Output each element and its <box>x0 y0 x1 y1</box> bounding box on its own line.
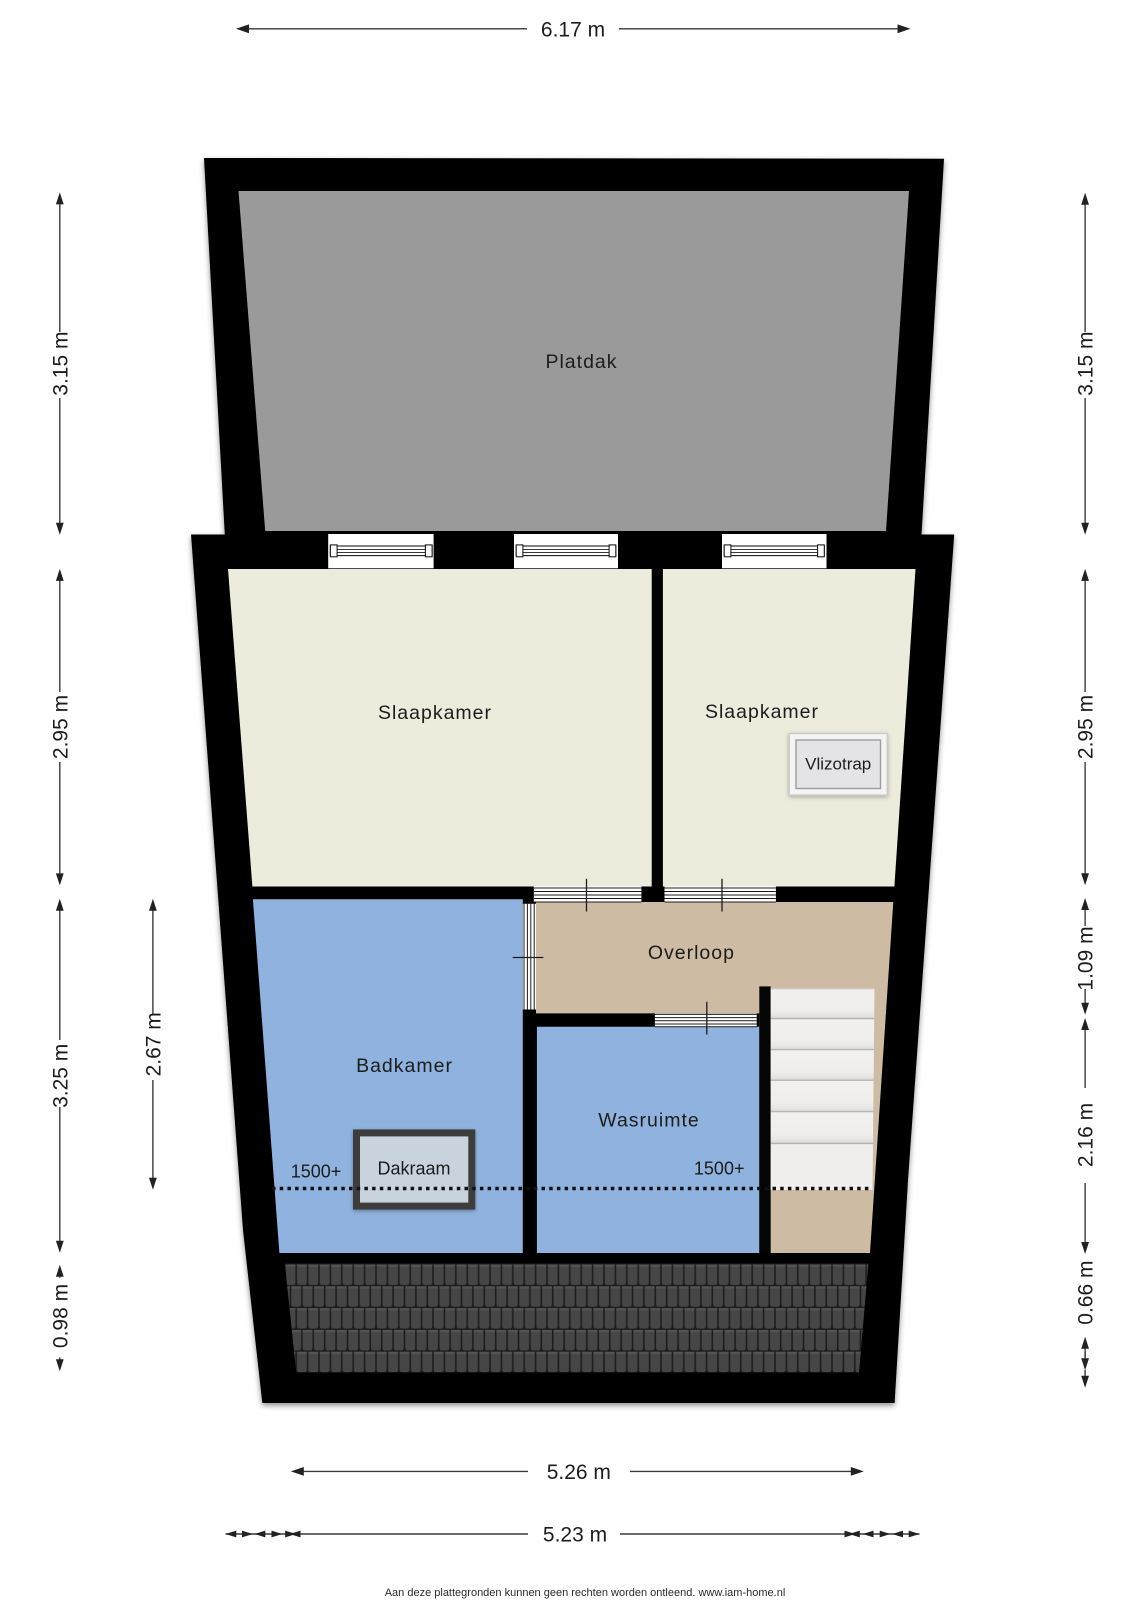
svg-text:3.15 m: 3.15 m <box>49 331 72 395</box>
svg-text:2.16 m: 2.16 m <box>1075 1103 1098 1167</box>
svg-text:Slaapkamer: Slaapkamer <box>378 702 492 724</box>
svg-text:2.95 m: 2.95 m <box>1075 695 1098 759</box>
svg-text:2.67 m: 2.67 m <box>142 1012 165 1076</box>
svg-text:Aan deze plattegronden kunnen: Aan deze plattegronden kunnen geen recht… <box>385 1587 786 1599</box>
svg-text:3.15 m: 3.15 m <box>1075 331 1098 395</box>
svg-text:Badkamer: Badkamer <box>356 1055 453 1077</box>
svg-text:0.66 m: 0.66 m <box>1075 1260 1098 1324</box>
svg-text:0.98 m: 0.98 m <box>49 1284 72 1348</box>
svg-text:3.25 m: 3.25 m <box>49 1044 72 1108</box>
svg-text:Overloop: Overloop <box>648 942 735 964</box>
svg-text:Platdak: Platdak <box>545 351 617 373</box>
svg-text:5.26 m: 5.26 m <box>547 1461 611 1484</box>
svg-text:2.95 m: 2.95 m <box>49 695 72 759</box>
svg-text:1.09 m: 1.09 m <box>1075 926 1098 990</box>
svg-text:1500+: 1500+ <box>291 1162 342 1182</box>
svg-text:5.23 m: 5.23 m <box>543 1524 607 1547</box>
svg-text:Dakraam: Dakraam <box>377 1159 450 1179</box>
svg-text:6.17 m: 6.17 m <box>541 19 605 42</box>
svg-text:1500+: 1500+ <box>694 1159 745 1179</box>
svg-text:Wasruimte: Wasruimte <box>598 1110 699 1132</box>
svg-text:Slaapkamer: Slaapkamer <box>705 701 819 723</box>
svg-text:Vlizotrap: Vlizotrap <box>805 755 871 774</box>
